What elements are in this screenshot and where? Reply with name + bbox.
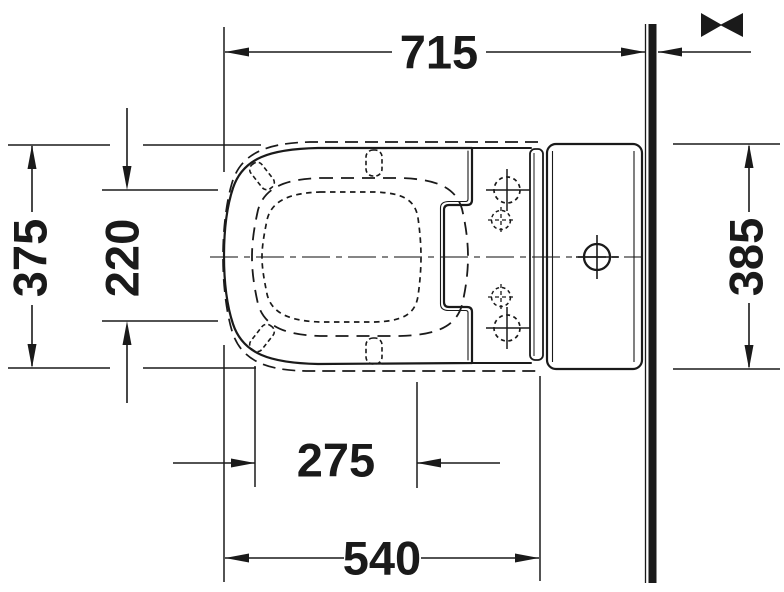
variable-dimension-icon [701, 13, 743, 37]
body-back-edges [472, 148, 531, 363]
hinge-strip [530, 149, 543, 360]
fixing-hole-top-small [492, 211, 511, 230]
dim-label-bottom-outer: 540 [343, 532, 421, 585]
buffer-top-center [366, 150, 382, 176]
dim-label-left-outer: 375 [4, 219, 57, 297]
extension-lines [8, 27, 780, 582]
dimension-lines [32, 52, 751, 558]
cistern-hole-crosshair [576, 235, 619, 279]
buffer-bottom-center [366, 338, 382, 364]
toilet-plan-drawing: 715 375 220 385 275 540 [0, 0, 784, 592]
dim-label-right: 385 [720, 218, 773, 296]
dimension-arrows [28, 48, 754, 563]
dim-label-top: 715 [400, 26, 478, 79]
dim-label-left-inner: 220 [96, 219, 149, 297]
wall-section [646, 24, 657, 583]
wall-bar [649, 24, 657, 583]
buffer-top-left [247, 160, 277, 192]
fixing-hole-bottom-small [492, 288, 511, 307]
technical-drawing-canvas: 715 375 220 385 275 540 [0, 0, 784, 592]
dim-label-bottom-inner: 275 [297, 434, 375, 487]
fixing-holes [486, 169, 530, 349]
